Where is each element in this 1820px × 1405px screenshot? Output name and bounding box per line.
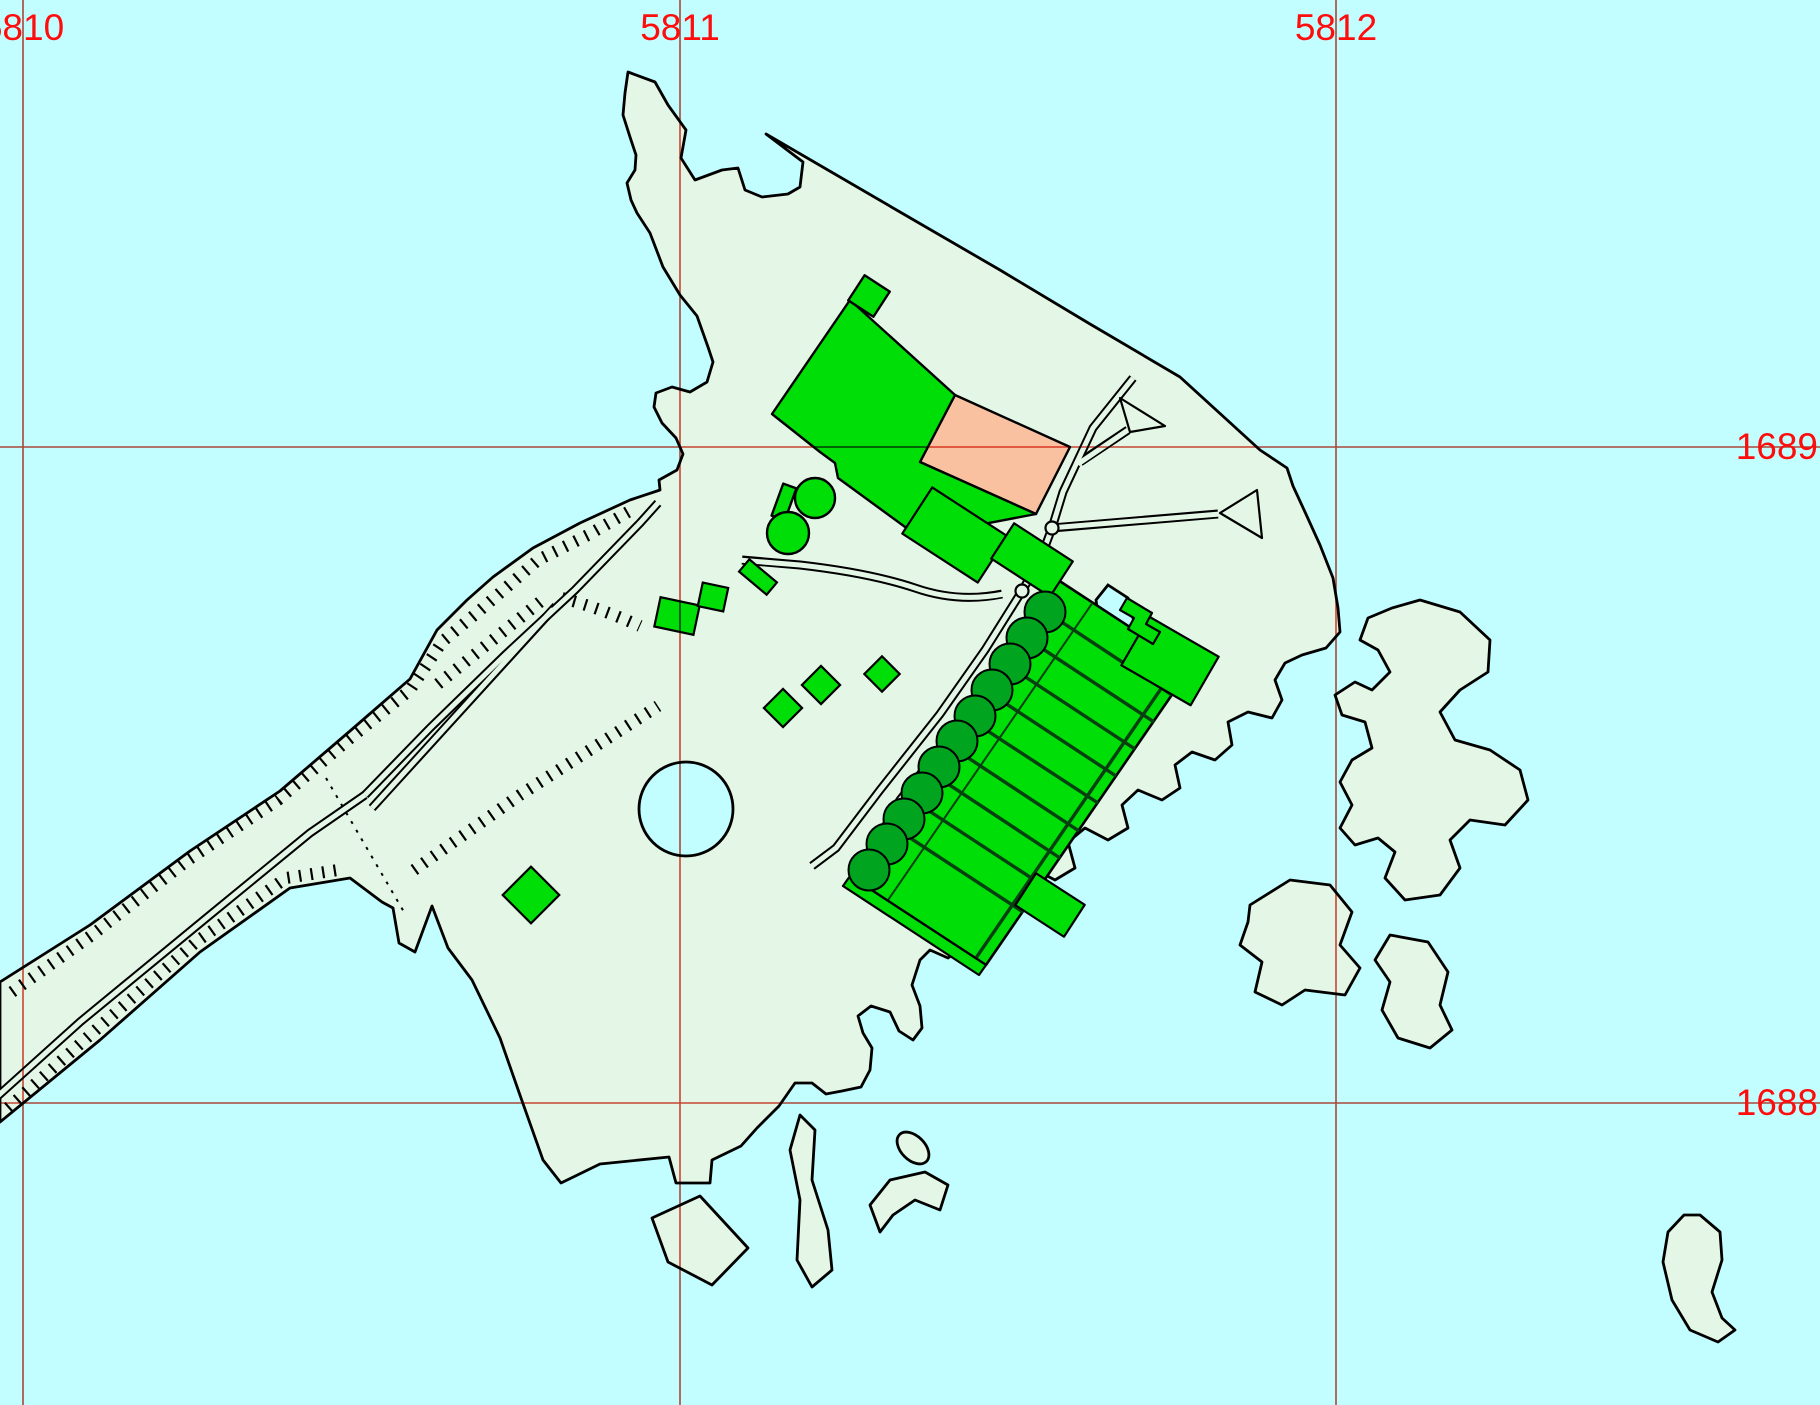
islet-southeast-a xyxy=(1240,880,1360,1005)
small-building-2 xyxy=(698,583,728,612)
grid-label-5811: 5811 xyxy=(640,7,720,48)
grid-label-5810: 5810 xyxy=(0,7,64,48)
pond xyxy=(639,762,733,856)
storage-tank-2 xyxy=(767,512,809,554)
grid-label-5812: 5812 xyxy=(1295,7,1377,48)
tank-icon xyxy=(849,850,890,891)
grid-label-1689: 1689 xyxy=(1736,426,1818,467)
road-junction-node-2 xyxy=(1016,585,1029,598)
map-viewport: 5810 5811 5812 1689 1688 xyxy=(0,0,1820,1405)
storage-tank-1 xyxy=(795,478,835,518)
road-junction-node-1 xyxy=(1046,522,1059,535)
map-canvas: 5810 5811 5812 1689 1688 xyxy=(0,0,1820,1405)
grid-label-1688: 1688 xyxy=(1736,1082,1818,1123)
